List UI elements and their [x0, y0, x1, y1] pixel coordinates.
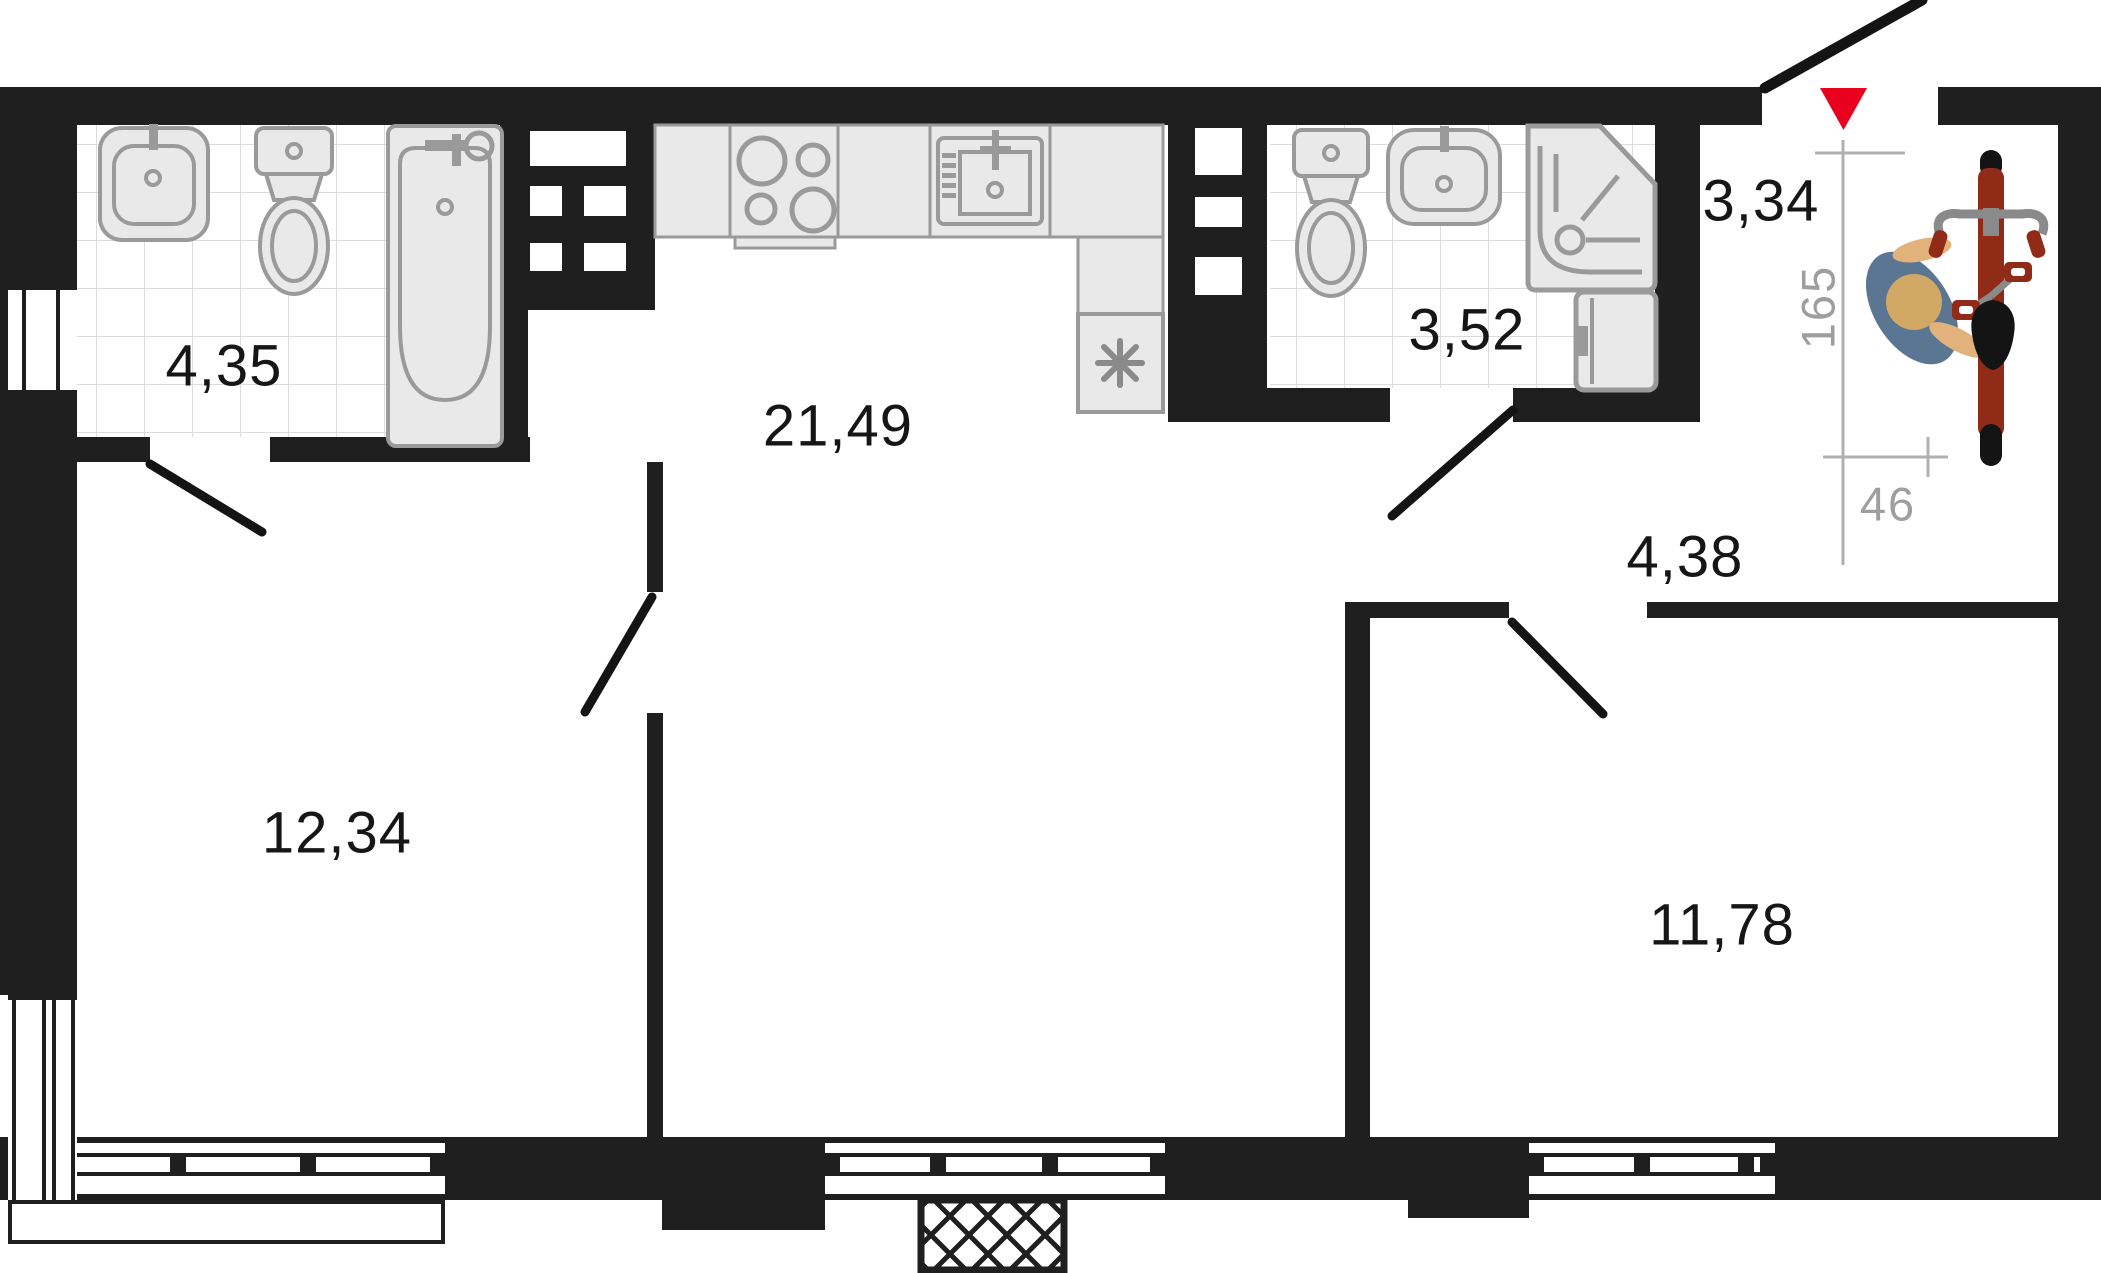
bicycle-saddle [1971, 300, 2014, 370]
wall-bathroom-1 [77, 437, 150, 462]
wash-basin-icon [100, 124, 208, 240]
wall-bedroom-2-left [1345, 602, 1370, 1200]
wall-bathroom-2 [1267, 388, 1390, 422]
wash-basin-icon [1388, 126, 1500, 224]
entrance-triangle-icon [1820, 88, 1867, 130]
bedroom-1-door-swing [585, 597, 652, 712]
wall-right [2058, 87, 2101, 1200]
bathroom-2-door-swing [1392, 410, 1513, 516]
washing-machine-icon [1576, 292, 1656, 390]
wall-bathroom-2-right [1655, 87, 1700, 422]
wall-bottom-pier [662, 1137, 825, 1230]
bathroom-1-door-swing [150, 464, 262, 532]
wall-bathroom-2 [1513, 388, 1655, 422]
wall-bedroom-1 [647, 713, 663, 1137]
bathtub-icon [388, 126, 502, 446]
floor-plan: 4,35 21,49 3,52 3,34 4,38 12,34 11,78 16… [0, 0, 2101, 1273]
wall-bottom [1775, 1137, 2101, 1200]
floor-plan-drawing [0, 0, 2101, 1273]
kitchen-counter [655, 125, 1163, 412]
wall-bedroom-2 [1647, 602, 2058, 618]
wall-bottom-pier [1408, 1137, 1529, 1218]
window-sill [10, 1202, 443, 1242]
wall-top-left [0, 87, 1762, 125]
wall-stub [500, 310, 528, 437]
bedroom-2-door-swing [1512, 622, 1603, 714]
balcony-hatch-icon [921, 1200, 1064, 1270]
wall-bedroom-1 [647, 462, 663, 592]
fridge-asterisk-icon [1078, 314, 1163, 412]
entrance-door-swing-icon [1765, 0, 1922, 88]
wall-left [0, 87, 77, 995]
